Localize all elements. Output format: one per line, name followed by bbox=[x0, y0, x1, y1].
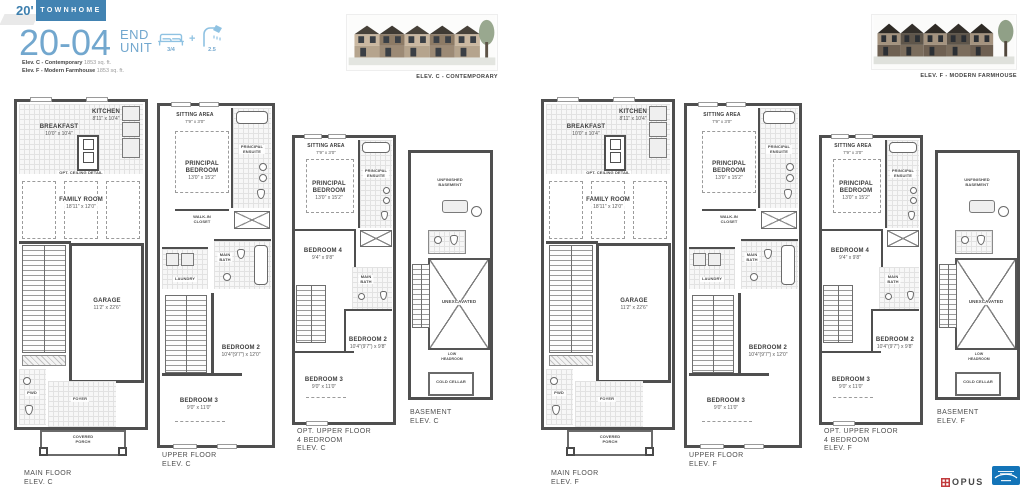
ensuite-label: PRINCIPAL ENSUITE bbox=[239, 145, 265, 154]
window bbox=[726, 102, 746, 107]
window bbox=[557, 97, 579, 102]
sink-icon bbox=[259, 163, 267, 171]
linen-closet bbox=[887, 230, 919, 247]
unexcavated-label: UNEXCAVATED bbox=[967, 300, 1005, 305]
plan-caption: UPPER FLOOR ELEV. F bbox=[689, 452, 744, 469]
sink-icon bbox=[885, 293, 892, 300]
note-line bbox=[306, 397, 346, 398]
principal-bedroom-label: PRINCIPAL BEDROOM 13'0" x 15'2" bbox=[837, 181, 875, 201]
garage-label: GARAGE 11'2" x 22'6" bbox=[93, 298, 121, 311]
upper-floor-plan: SITTING AREA 7'9" x 3'0" PRINCIPAL ENSUI… bbox=[684, 103, 802, 483]
wall-segment bbox=[881, 229, 883, 269]
sitting-area-label: SITTING AREA 7'9" x 3'0" bbox=[834, 143, 872, 156]
wall-segment bbox=[175, 209, 229, 211]
elevation-line: Elev. C - Contemporary 1853 sq. ft. bbox=[22, 59, 124, 67]
sink-icon bbox=[910, 187, 917, 194]
plan-number: 20-04 bbox=[19, 22, 111, 64]
main-bath-floor bbox=[352, 267, 392, 309]
low-headroom-label: LOW HEADROOM bbox=[968, 352, 990, 361]
bedroom3-label: BEDROOM 3 9'0" x 11'0" bbox=[180, 398, 218, 411]
water-heater-icon bbox=[998, 206, 1009, 217]
window bbox=[86, 97, 108, 102]
laundry-label: LAUNDRY bbox=[173, 277, 197, 282]
ceiling-note: OPT. CEILING DETAIL bbox=[584, 171, 631, 176]
bathtub-icon bbox=[254, 245, 268, 285]
floorplan-group: KITCHEN 8'11" x 10'4" BREAKFAST 10'0" x … bbox=[14, 93, 506, 492]
wall-segment bbox=[354, 229, 356, 269]
ceiling-note: OPT. CEILING DETAIL bbox=[57, 171, 104, 176]
bedroom3-label: BEDROOM 3 9'0" x 11'0" bbox=[707, 398, 745, 411]
opt-upper-floor-plan: SITTING AREA 7'9" x 3'0" PRINCIPAL ENSUI… bbox=[819, 135, 923, 465]
garage-room bbox=[69, 243, 144, 383]
family-room-label: FAMILY ROOM 18'11" x 12'0" bbox=[584, 197, 632, 210]
wall-segment bbox=[346, 309, 392, 311]
area-rug bbox=[591, 181, 625, 239]
porch-post bbox=[39, 447, 48, 456]
area-rug bbox=[64, 181, 98, 239]
wall-segment bbox=[294, 351, 354, 353]
cold-cellar-label: COLD CELLAR bbox=[436, 380, 466, 385]
sink-icon bbox=[610, 152, 621, 163]
wall-segment bbox=[821, 229, 883, 231]
stairs bbox=[296, 285, 326, 343]
linen-closet bbox=[360, 230, 392, 247]
stairs bbox=[165, 295, 207, 373]
sink-icon bbox=[259, 174, 267, 182]
sink-icon bbox=[358, 293, 365, 300]
stair-divider bbox=[186, 296, 187, 372]
wall-segment bbox=[344, 309, 346, 353]
elevation-info: Elev. C - Contemporary 1853 sq. ft. Elev… bbox=[22, 59, 124, 75]
cooktop-icon bbox=[83, 139, 94, 150]
sink-icon bbox=[961, 236, 969, 244]
stair-divider bbox=[421, 265, 422, 327]
sink-icon bbox=[910, 197, 917, 204]
bathtub-icon bbox=[763, 111, 795, 124]
breakfast-label: BREAKFAST 10'0" x 10'4" bbox=[567, 124, 605, 137]
wall-segment bbox=[231, 108, 233, 208]
window bbox=[199, 102, 219, 107]
unfinished-basement-label: UNFINISHED BASEMENT bbox=[437, 178, 462, 187]
furnace-icon bbox=[442, 200, 468, 213]
stair-divider bbox=[571, 246, 572, 352]
opus-logo-icon bbox=[941, 478, 950, 487]
sink-icon bbox=[786, 163, 794, 171]
ensuite-label: PRINCIPAL ENSUITE bbox=[766, 145, 792, 154]
sink-icon bbox=[383, 187, 390, 194]
main-floor-plan: KITCHEN 8'11" x 10'4" BREAKFAST 10'0" x … bbox=[541, 93, 675, 492]
beds-count: 3/4 bbox=[157, 47, 185, 53]
stairs bbox=[939, 264, 957, 328]
lot-width-label: 20' bbox=[16, 3, 34, 18]
stairs bbox=[412, 264, 430, 328]
main-bath-label: MAIN BATH bbox=[885, 275, 900, 284]
principal-bedroom-label: PRINCIPAL BEDROOM 13'0" x 15'2" bbox=[183, 161, 221, 181]
walk-in-closet-label: WALK-IN CLOSET bbox=[720, 215, 738, 224]
bathtub-icon bbox=[236, 111, 268, 124]
wall-segment bbox=[885, 140, 887, 228]
sink-icon bbox=[750, 273, 758, 281]
window bbox=[744, 444, 764, 449]
foyer-label: FOYER bbox=[598, 397, 616, 402]
porch-label: COVERED PORCH bbox=[600, 435, 620, 444]
porch-post bbox=[645, 447, 654, 456]
baths-count: 2.5 bbox=[200, 47, 224, 53]
wall-segment bbox=[702, 209, 756, 211]
garage-room bbox=[596, 243, 671, 383]
low-headroom-label: LOW HEADROOM bbox=[441, 352, 463, 361]
bedroom2-label: BEDROOM 2 10'4"(9'7") x 9'8" bbox=[876, 337, 914, 350]
area-rug bbox=[549, 181, 583, 239]
sitting-area-label: SITTING AREA 7'9" x 3'0" bbox=[703, 112, 741, 125]
stove-icon bbox=[122, 122, 140, 137]
note-line bbox=[175, 421, 225, 422]
foyer-floor bbox=[575, 381, 643, 427]
bathtub-icon bbox=[889, 142, 917, 153]
bedroom2-label: BEDROOM 2 10'4"(9'7") x 12'0" bbox=[221, 345, 260, 358]
plan-caption: BASEMENT ELEV. C bbox=[410, 409, 452, 426]
note-line bbox=[833, 397, 873, 398]
product-type-badge: TOWNHOME bbox=[36, 0, 106, 21]
linen-closet bbox=[761, 211, 797, 229]
main-bath-label: MAIN BATH bbox=[217, 253, 232, 262]
wall-segment bbox=[871, 309, 873, 353]
furnace-icon bbox=[969, 200, 995, 213]
floorplan-group: KITCHEN 8'11" x 10'4" BREAKFAST 10'0" x … bbox=[541, 93, 1024, 492]
family-room-label: FAMILY ROOM 18'11" x 12'0" bbox=[57, 197, 105, 210]
window bbox=[171, 102, 191, 107]
cold-cellar-label: COLD CELLAR bbox=[963, 380, 993, 385]
area-rug bbox=[22, 181, 56, 239]
stair-divider bbox=[713, 296, 714, 372]
porch-post bbox=[118, 447, 127, 456]
stair-divider bbox=[948, 265, 949, 327]
builder-logo: OPUS bbox=[941, 477, 984, 487]
powder-room-label: PWD bbox=[25, 391, 39, 396]
bedroom4-label: BEDROOM 4 9'4" x 9'8" bbox=[304, 248, 342, 261]
under-stair-closet bbox=[549, 355, 593, 366]
sink-icon bbox=[83, 152, 94, 163]
garage-label: GARAGE 11'2" x 22'6" bbox=[620, 298, 648, 311]
wall-segment bbox=[758, 108, 760, 208]
principal-bedroom-label: PRINCIPAL BEDROOM 13'0" x 15'2" bbox=[710, 161, 748, 181]
window bbox=[217, 444, 237, 449]
plan-caption: OPT. UPPER FLOOR 4 BEDROOM ELEV. C bbox=[297, 428, 371, 454]
plan-caption: MAIN FLOOR ELEV. C bbox=[24, 470, 72, 487]
sitting-area-label: SITTING AREA 7'9" x 3'0" bbox=[176, 112, 214, 125]
main-bath-floor bbox=[879, 267, 919, 309]
basement-plan: UNFINISHED BASEMENT UNEXCAVATED LOW HEAD… bbox=[935, 150, 1024, 450]
basement-plan: UNFINISHED BASEMENT UNEXCAVATED LOW HEAD… bbox=[408, 150, 504, 450]
stair-divider bbox=[44, 246, 45, 352]
elevation-render-c: ELEV. C - CONTEMPORARY bbox=[346, 14, 498, 80]
window bbox=[700, 444, 724, 449]
washer-icon bbox=[166, 253, 179, 266]
dryer-icon bbox=[181, 253, 194, 266]
area-rug bbox=[633, 181, 667, 239]
stair-divider bbox=[838, 286, 839, 342]
kitchen-island bbox=[604, 135, 626, 171]
wall-segment bbox=[738, 293, 741, 375]
bedroom3-label: BEDROOM 3 9'0" x 11'0" bbox=[305, 377, 343, 390]
ensuite-label: PRINCIPAL ENSUITE bbox=[363, 169, 389, 178]
principal-bedroom-label: PRINCIPAL BEDROOM 13'0" x 15'2" bbox=[310, 181, 348, 201]
sink-icon bbox=[434, 236, 442, 244]
window bbox=[613, 97, 635, 102]
wall-segment bbox=[546, 241, 598, 244]
stairs bbox=[823, 285, 853, 343]
foyer-floor bbox=[48, 381, 116, 427]
unit-type-label: END UNIT bbox=[120, 29, 152, 54]
bedroom2-label: BEDROOM 2 10'4"(9'7") x 12'0" bbox=[748, 345, 787, 358]
plan-caption: OPT. UPPER FLOOR 4 BEDROOM ELEV. F bbox=[824, 428, 898, 454]
window bbox=[30, 97, 52, 102]
stairs bbox=[22, 245, 66, 353]
wall-segment bbox=[19, 241, 71, 244]
bed-icon bbox=[157, 29, 185, 46]
window bbox=[855, 134, 873, 139]
wall-segment bbox=[821, 351, 881, 353]
elevation-line: Elev. F - Modern Farmhouse 1853 sq. ft. bbox=[22, 67, 124, 75]
window bbox=[328, 134, 346, 139]
breakfast-label: BREAKFAST 10'0" x 10'4" bbox=[40, 124, 78, 137]
stair-divider bbox=[311, 286, 312, 342]
plus-sign: + bbox=[189, 33, 195, 45]
fridge-icon bbox=[649, 106, 667, 121]
stairs bbox=[549, 245, 593, 353]
kitchen-label: KITCHEN 8'11" x 10'4" bbox=[92, 109, 120, 122]
foyer-label: FOYER bbox=[71, 397, 89, 402]
bedroom2-label: BEDROOM 2 10'4"(9'7") x 9'8" bbox=[349, 337, 387, 350]
unexcavated-label: UNEXCAVATED bbox=[440, 300, 478, 305]
bathtub-icon bbox=[781, 245, 795, 285]
wall-segment bbox=[211, 293, 214, 375]
laundry-label: LAUNDRY bbox=[700, 277, 724, 282]
water-heater-icon bbox=[471, 206, 482, 217]
sink-icon bbox=[383, 197, 390, 204]
opt-upper-floor-plan: SITTING AREA 7'9" x 3'0" PRINCIPAL ENSUI… bbox=[292, 135, 396, 465]
main-bath-label: MAIN BATH bbox=[358, 275, 373, 284]
pantry-cabinet bbox=[649, 138, 667, 158]
stove-icon bbox=[649, 122, 667, 137]
bedroom3-label: BEDROOM 3 9'0" x 11'0" bbox=[832, 377, 870, 390]
fridge-icon bbox=[122, 106, 140, 121]
upper-floor-plan: SITTING AREA 7'9" x 3'0" PRINCIPAL ENSUI… bbox=[157, 103, 275, 483]
window bbox=[698, 102, 718, 107]
unfinished-basement-label: UNFINISHED BASEMENT bbox=[964, 178, 989, 187]
stairs bbox=[692, 295, 734, 373]
energy-star-logo bbox=[992, 466, 1020, 485]
washer-icon bbox=[693, 253, 706, 266]
window bbox=[833, 421, 855, 426]
bedroom4-label: BEDROOM 4 9'4" x 9'8" bbox=[831, 248, 869, 261]
kitchen-island bbox=[77, 135, 99, 171]
window bbox=[306, 421, 328, 426]
wall-segment bbox=[162, 373, 242, 376]
pantry-cabinet bbox=[122, 138, 140, 158]
builder-name: OPUS bbox=[952, 477, 984, 487]
ensuite-label: PRINCIPAL ENSUITE bbox=[890, 169, 916, 178]
main-bath-label: MAIN BATH bbox=[744, 253, 759, 262]
dryer-icon bbox=[708, 253, 721, 266]
sink-icon bbox=[550, 377, 558, 385]
note-line bbox=[702, 421, 752, 422]
sink-icon bbox=[786, 174, 794, 182]
elevation-render-c-image bbox=[346, 14, 498, 71]
window bbox=[173, 444, 197, 449]
sitting-area-label: SITTING AREA 7'9" x 3'0" bbox=[307, 143, 345, 156]
powder-room-label: PWD bbox=[552, 391, 566, 396]
under-stair-closet bbox=[22, 355, 66, 366]
wall-segment bbox=[873, 309, 919, 311]
plan-caption: BASEMENT ELEV. F bbox=[937, 409, 979, 426]
wall-segment bbox=[689, 373, 769, 376]
main-floor-plan: KITCHEN 8'11" x 10'4" BREAKFAST 10'0" x … bbox=[14, 93, 148, 492]
elevation-render-f: ELEV. F - MODERN FARMHOUSE bbox=[871, 14, 1017, 79]
porch-label: COVERED PORCH bbox=[73, 435, 93, 444]
sink-icon bbox=[223, 273, 231, 281]
area-rug bbox=[106, 181, 140, 239]
window bbox=[831, 134, 849, 139]
plan-caption: UPPER FLOOR ELEV. C bbox=[162, 452, 217, 469]
kitchen-label: KITCHEN 8'11" x 10'4" bbox=[619, 109, 647, 122]
elevation-render-f-image bbox=[871, 14, 1017, 70]
shower-icon bbox=[200, 24, 224, 47]
wall-segment bbox=[358, 140, 360, 228]
porch-post bbox=[566, 447, 575, 456]
cooktop-icon bbox=[610, 139, 621, 150]
wall-segment bbox=[294, 229, 356, 231]
render-caption: ELEV. F - MODERN FARMHOUSE bbox=[871, 73, 1017, 79]
linen-closet bbox=[234, 211, 270, 229]
plan-caption: MAIN FLOOR ELEV. F bbox=[551, 470, 599, 487]
walk-in-closet-label: WALK-IN CLOSET bbox=[193, 215, 211, 224]
bathtub-icon bbox=[362, 142, 390, 153]
render-caption: ELEV. C - CONTEMPORARY bbox=[346, 74, 498, 80]
sink-icon bbox=[23, 377, 31, 385]
window bbox=[304, 134, 322, 139]
